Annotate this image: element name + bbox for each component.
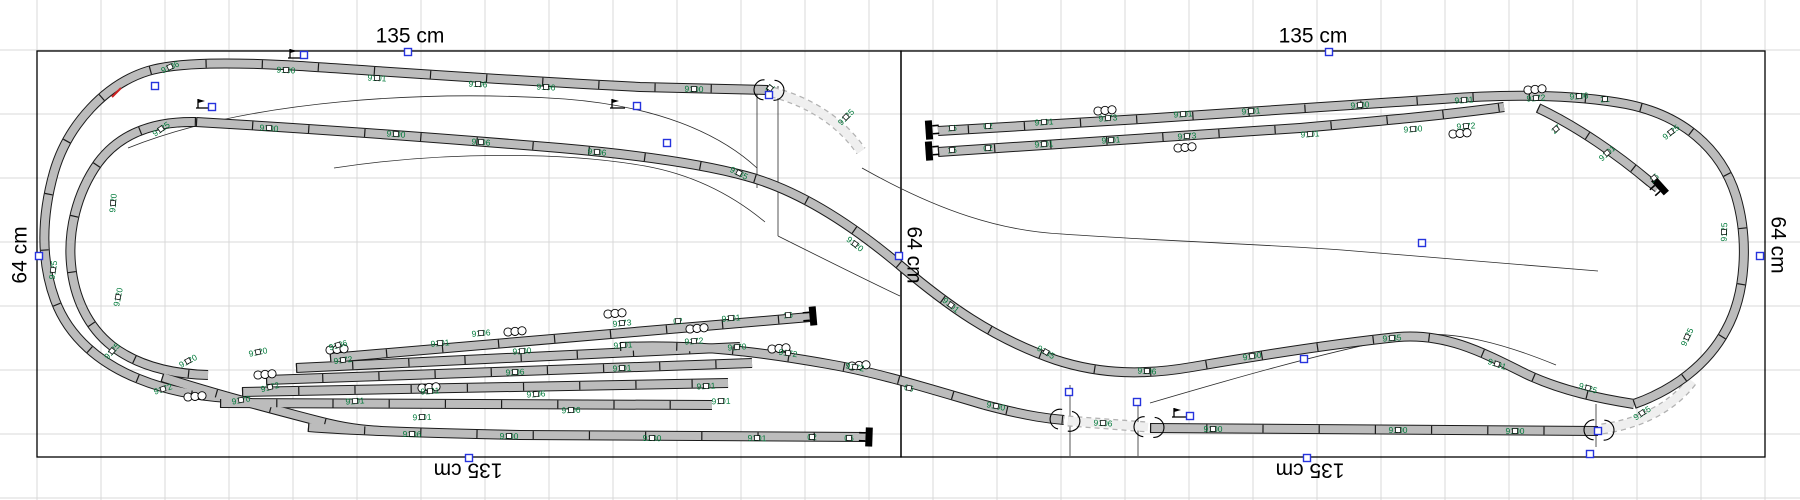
rail-connector-square — [507, 434, 512, 439]
track-plan-canvas: 9136910091019106910691009125910091009106… — [0, 0, 1800, 500]
rail-connector-square — [785, 350, 790, 355]
selection-handle[interactable] — [209, 104, 216, 111]
rail-connector-square — [734, 344, 739, 349]
rail-connector-square — [949, 125, 954, 130]
selection-handle[interactable] — [301, 52, 308, 59]
selection-handle[interactable] — [1304, 455, 1311, 462]
track-part-label: 9135 — [1382, 332, 1402, 343]
track-part-label: 9106 — [471, 136, 491, 147]
track-part-label: 16 — [783, 310, 794, 321]
rail-connector-square — [785, 312, 790, 317]
track-part-label: 16 — [947, 123, 957, 134]
track-part-label: 9101 — [721, 312, 741, 324]
track-part-label: 9100 — [259, 122, 279, 133]
track-part-label: 9106 — [536, 82, 556, 93]
rail-connector-square — [1180, 111, 1185, 116]
rail-connector-square — [1211, 427, 1216, 432]
track-part-label: 9173 — [1098, 112, 1118, 123]
rail-connector-square — [1041, 119, 1046, 124]
track-part-label: 9101 — [345, 395, 365, 406]
turnout-marker[interactable] — [504, 327, 526, 336]
rail-connector-square — [420, 415, 425, 420]
track-outline[interactable] — [70, 122, 208, 375]
rail-connector-square — [110, 200, 115, 205]
rail-connector-square — [755, 436, 760, 441]
track-joint-ticks — [70, 122, 208, 375]
selection-handle[interactable] — [1301, 356, 1308, 363]
track-part-label: 9100 — [276, 65, 296, 76]
track-part-label: 9106 — [1093, 418, 1113, 429]
rail-connector-square — [410, 432, 415, 437]
turnout-marker-circle — [198, 392, 206, 400]
rail-connector-square — [533, 391, 538, 396]
track-part-label: 9100 — [1389, 425, 1408, 435]
buffer-stop-bar — [925, 120, 933, 139]
track[interactable] — [70, 122, 208, 375]
rail-connector-square — [1389, 335, 1394, 340]
track-part-label: 9100 — [512, 345, 532, 356]
rail-connector-square — [1357, 102, 1362, 107]
buffer-stop[interactable] — [925, 141, 940, 161]
rail-connector-square — [1108, 137, 1113, 142]
rail-connector-square — [352, 398, 357, 403]
track-part-label: 9172 — [1456, 120, 1476, 131]
track-part-label: 9101 — [711, 396, 731, 407]
rail-connector-square — [266, 125, 271, 130]
rail-connector-square — [1184, 133, 1189, 138]
rail-connector-square — [543, 84, 548, 89]
selection-handle[interactable] — [405, 49, 412, 56]
track-part-label: 9106 — [561, 405, 581, 416]
selection-handle[interactable] — [664, 140, 671, 147]
rail-connector-square — [475, 81, 480, 86]
rail-connector-square — [847, 436, 852, 441]
track-part-label: 9172 — [684, 335, 704, 346]
track-part-label: 9173 — [1177, 130, 1197, 141]
rail-connector-square — [1463, 123, 1468, 128]
rail-connector-square — [728, 315, 733, 320]
track-part-label: 9101 — [696, 380, 716, 391]
track-part-label: 9100 — [642, 433, 661, 443]
rail-connector-square — [283, 67, 288, 72]
buffer-stop-arm — [803, 312, 809, 313]
rail-connector-square — [1494, 361, 1500, 367]
dimension-label[interactable]: 64 cm — [1767, 216, 1790, 273]
rail-connector-square — [692, 87, 697, 92]
track-part-label: 9100 — [386, 128, 406, 139]
track[interactable] — [242, 383, 728, 392]
rail-connector-square — [619, 365, 624, 370]
selection-handle[interactable] — [1419, 240, 1426, 247]
rail-connector-square — [115, 294, 121, 300]
rail-connector-square — [340, 357, 345, 362]
dimension-label[interactable]: 64 cm — [9, 226, 32, 283]
rail-connector-square — [650, 436, 655, 441]
rail-connector-square — [1100, 420, 1105, 425]
tracks-layer — [44, 63, 1743, 437]
rail-connector-square — [50, 267, 55, 272]
dimension-label[interactable]: 64 cm — [903, 226, 926, 283]
selection-handle[interactable] — [766, 92, 773, 99]
track[interactable] — [220, 403, 712, 405]
selection-handle[interactable] — [152, 83, 159, 90]
signal-flag-icon — [198, 99, 205, 103]
track-part-label: 9120 — [248, 345, 269, 359]
track-part-label: 9106 — [402, 429, 421, 439]
turnout-marker[interactable] — [686, 324, 708, 333]
rail-connector-square — [619, 320, 624, 325]
track-part-label: 9100 — [1506, 426, 1525, 436]
track-part-label: 9101 — [1034, 116, 1054, 127]
turnout-marker[interactable] — [604, 309, 626, 318]
baseboard-outline — [901, 51, 1765, 457]
rail-connector-square — [1144, 368, 1149, 373]
rail-connector-square — [1602, 96, 1607, 101]
turnout-marker-circle — [518, 327, 526, 335]
selection-handle[interactable] — [1326, 49, 1333, 56]
buffer-stop[interactable] — [925, 120, 940, 140]
track-part-label: 9100 — [1204, 424, 1223, 434]
track-part-label: 9120 — [177, 352, 199, 370]
rail-connector-square — [1041, 141, 1046, 146]
track-part-label: 9101 — [1173, 108, 1193, 119]
rail-connector-square — [393, 131, 398, 136]
rail-connector-square — [512, 369, 517, 374]
rail-connector-square — [255, 349, 261, 355]
rail-connector-square — [906, 385, 912, 391]
track-part-label: 02 — [673, 316, 684, 327]
rail-connector-square — [993, 403, 999, 409]
track-part-label: 9106 — [471, 327, 491, 339]
track-part-label: 9120 — [111, 286, 125, 307]
track-part-label: 02 — [983, 143, 993, 154]
rail-connector-square — [691, 338, 696, 343]
rail-connector-square — [1248, 108, 1253, 113]
track-part-label: 9101 — [1034, 138, 1054, 149]
rail-connector-square — [267, 384, 273, 390]
rail-connector-square — [160, 386, 166, 392]
turnout-marker[interactable] — [184, 392, 206, 401]
buffer-stop-bar — [865, 427, 873, 446]
track-part-label: 9125 — [836, 107, 857, 128]
track-part-label: 9100 — [684, 84, 704, 95]
rail-connector-square — [519, 348, 524, 353]
track-part-label: 9106 — [1137, 366, 1157, 377]
track-part-label: 9120 — [107, 193, 119, 213]
track-part-label: 9101 — [1454, 94, 1474, 105]
track-part-label: 9125 — [1678, 326, 1695, 348]
track-part-label: 9125 — [47, 260, 60, 280]
rail-connector-square — [719, 399, 724, 404]
track-part-label: 9101 — [430, 337, 450, 349]
rail-connector-square — [1410, 126, 1415, 131]
buffer-stop-bar — [809, 306, 818, 326]
turnout-marker[interactable] — [1174, 143, 1196, 152]
selection-handle[interactable] — [1187, 413, 1194, 420]
rail-connector-square — [1533, 95, 1538, 100]
track-part-label: 02 — [807, 432, 817, 442]
rail-connector-square — [1461, 97, 1466, 102]
track-part-label: 9101 — [420, 385, 440, 396]
track-part-label: 9172 — [1526, 92, 1546, 103]
rail-connector-square — [569, 408, 574, 413]
selection-handle[interactable] — [634, 103, 641, 110]
rail-connector-square — [437, 340, 442, 345]
rail-connector-square — [1576, 93, 1581, 98]
turnout-marker-circle — [1188, 143, 1196, 151]
turnout-marker[interactable] — [254, 370, 276, 379]
rail-connector-square — [238, 397, 244, 403]
rail-connector-square — [985, 123, 990, 128]
track-part-label: 21 — [1600, 94, 1610, 105]
track-part-label: 9170 — [727, 341, 747, 352]
rail-connector-square — [427, 388, 432, 393]
track-part-label: 02 — [983, 121, 993, 132]
rail-connector-square — [1249, 353, 1254, 358]
buffer-stop-arm — [1655, 191, 1660, 195]
track-part-label: 9106 — [1569, 90, 1589, 101]
rail-connector-square — [594, 149, 599, 154]
signal-flag-icon — [1174, 408, 1181, 412]
signal-symbol[interactable] — [1172, 408, 1187, 417]
track-part-label: 9106 — [526, 388, 546, 399]
selection-handle[interactable] — [466, 455, 473, 462]
selection-handle[interactable] — [1757, 253, 1764, 260]
track-part-label: 9101 — [612, 362, 632, 373]
rail-connector-square — [374, 75, 379, 80]
track-part-label: 9101 — [1101, 134, 1121, 145]
rail-connector-square — [478, 139, 483, 144]
rail-connector-square — [985, 145, 990, 150]
turnout-marker-circle — [700, 324, 708, 332]
rail-connector-square — [675, 318, 680, 323]
rail-connector-square — [852, 364, 858, 370]
track-part-label: 9106 — [587, 146, 607, 158]
rail-connector-square — [1513, 429, 1518, 434]
selection-handle[interactable] — [896, 253, 903, 260]
track-part-label: 9101 — [1300, 128, 1320, 139]
dimension-label[interactable]: 135 cm — [1279, 25, 1348, 48]
buffer-stop-arm — [803, 320, 809, 321]
selection-handle[interactable] — [36, 253, 43, 260]
dimension-label[interactable]: 135 cm — [376, 25, 445, 48]
track-part-label: 06 — [903, 382, 914, 394]
rail-connector-square — [1722, 230, 1727, 235]
turnout-marker-circle — [268, 370, 276, 378]
track-part-label: 9125 — [1719, 222, 1730, 242]
track-part-label: 9106 — [505, 366, 525, 377]
track-part-label: 9136 — [159, 58, 181, 75]
track-part-label: 9100 — [1403, 123, 1423, 134]
track-part-label: 9173 — [612, 317, 632, 329]
track-part-label: 9101 — [1241, 105, 1261, 116]
grid-layer — [0, 0, 1800, 500]
rail-connector-square — [1307, 131, 1312, 136]
rail-connector-square — [478, 330, 483, 335]
rail-connector-square — [1105, 115, 1110, 120]
turnout-marker-circle — [618, 309, 626, 317]
track-part-label: 16 — [947, 145, 957, 156]
selection-handle[interactable] — [1066, 389, 1073, 396]
signal-flag-icon — [612, 99, 619, 103]
rail-connector-square — [810, 435, 815, 440]
rail-connector-square — [949, 147, 954, 152]
rail-connector-square — [703, 383, 708, 388]
rail-connector-square — [1396, 428, 1401, 433]
track-part-label: 9101 — [412, 412, 432, 423]
track-part-label: 9101 — [367, 73, 387, 84]
track-part-label: 9100 — [1350, 99, 1370, 110]
track-plan-drawing: 9136910091019106910691009125910091009106… — [0, 0, 1800, 500]
selection-handle[interactable] — [1587, 451, 1594, 458]
buffer-stop-bar — [925, 141, 933, 160]
rail-connector-square — [620, 342, 625, 347]
selection-handle[interactable] — [1134, 399, 1141, 406]
rail-connector-square — [1585, 385, 1591, 391]
baseboard-outline — [37, 51, 901, 457]
elevation-line[interactable] — [862, 168, 1598, 271]
track-part-label: 9101 — [747, 433, 766, 443]
rail-connector-square — [335, 342, 341, 348]
track-part-label: 9100 — [499, 431, 518, 441]
track-part-label: 9106 — [468, 79, 488, 90]
track-part-label: 06 — [844, 433, 854, 443]
selection-handle[interactable] — [1595, 428, 1602, 435]
track-part-label: 9101 — [613, 339, 633, 350]
